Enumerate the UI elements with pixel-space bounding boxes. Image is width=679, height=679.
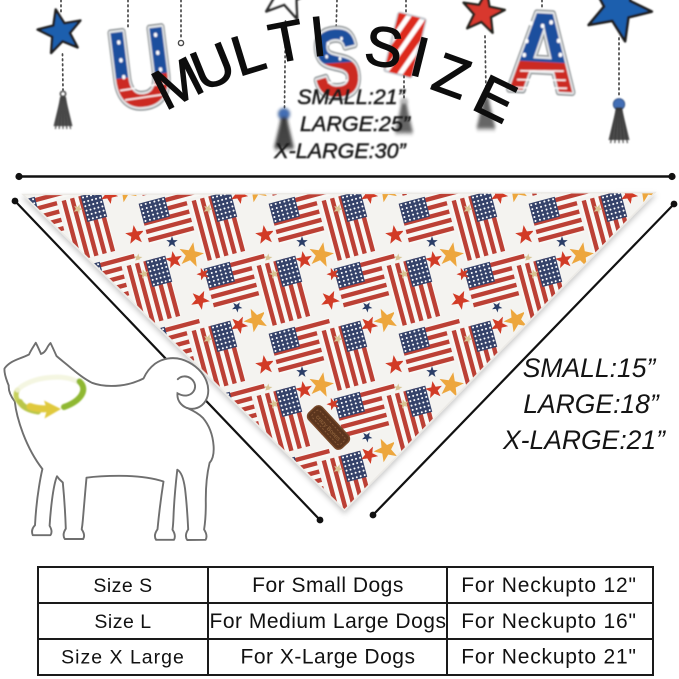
svg-text:Size S: Size S	[93, 575, 152, 597]
svg-text:SMALL:15”: SMALL:15”	[523, 353, 657, 383]
svg-text:For Medium Large Dogs: For Medium Large Dogs	[210, 610, 447, 633]
svg-text:LARGE:25”: LARGE:25”	[300, 112, 411, 136]
svg-text:For Neckupto 21": For Neckupto 21"	[461, 646, 637, 669]
svg-text:Size X Large: Size X Large	[61, 647, 185, 669]
svg-text:LARGE:18”: LARGE:18”	[523, 389, 660, 419]
svg-text:X-LARGE:30”: X-LARGE:30”	[273, 139, 406, 163]
svg-text:SMALL:21”: SMALL:21”	[297, 85, 405, 109]
svg-text:For Neckupto 16": For Neckupto 16"	[461, 610, 637, 633]
svg-text:Size L: Size L	[94, 611, 151, 633]
svg-text:For X-Large Dogs: For X-Large Dogs	[241, 646, 416, 669]
svg-text:For Neckupto 12": For Neckupto 12"	[461, 574, 637, 597]
svg-text:X-LARGE:21”: X-LARGE:21”	[502, 425, 666, 455]
svg-text:For Small Dogs: For Small Dogs	[252, 574, 404, 597]
